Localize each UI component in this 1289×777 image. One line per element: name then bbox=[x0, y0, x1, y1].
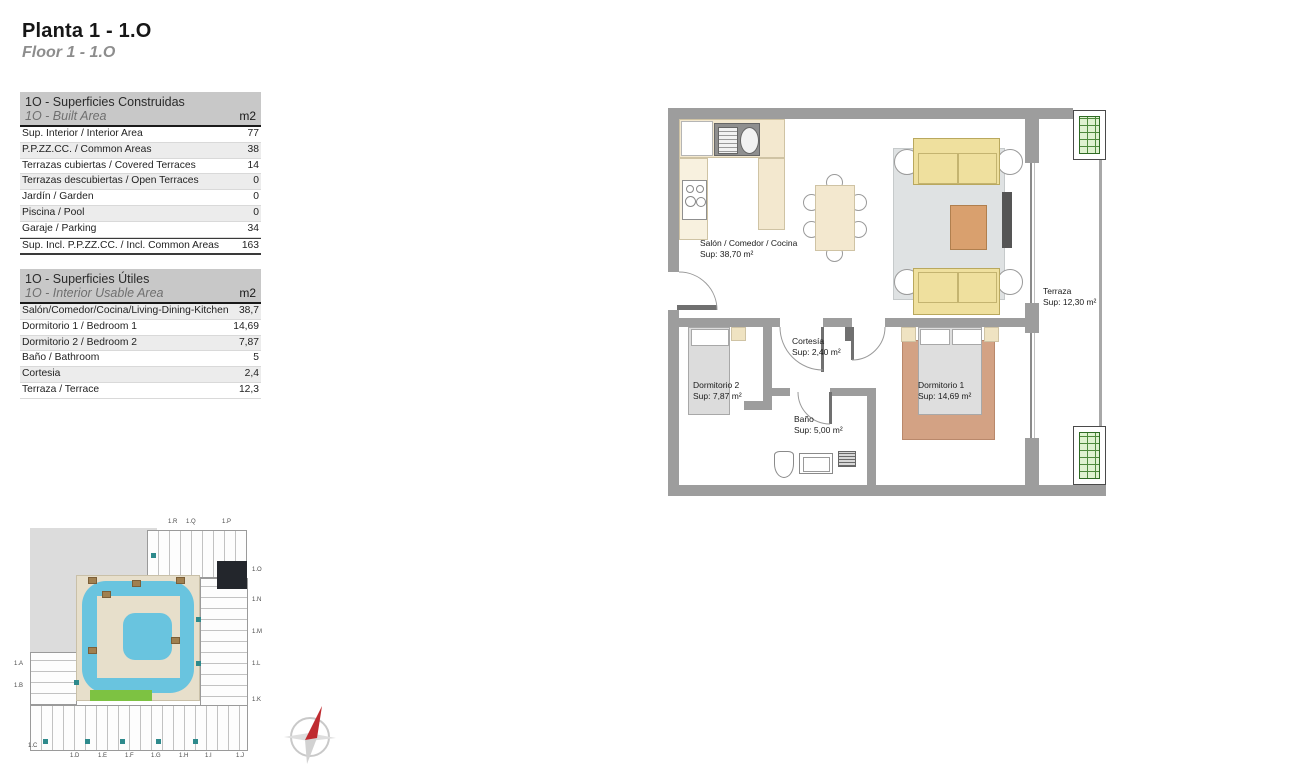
site-plan: 1.R1.Q1.P1.O1.N1.M1.L1.K1.A1.B1.C1.D1.E1… bbox=[28, 525, 250, 765]
table-row: Baño / Bathroom5 bbox=[20, 351, 261, 367]
site-units-right bbox=[200, 578, 248, 708]
row-value: 38 bbox=[248, 143, 259, 158]
site-units-bottom bbox=[30, 705, 248, 751]
room-labels-layer: Salón / Comedor / CocinaSup: 38,70 m²Ter… bbox=[668, 108, 1106, 496]
unit-label-1.C: 1.C bbox=[28, 743, 37, 749]
room-label-dormitorio1: Dormitorio 1Sup: 14,69 m² bbox=[918, 380, 971, 402]
row-value: 77 bbox=[248, 127, 259, 142]
unit-label-1.O: 1.O bbox=[252, 567, 262, 573]
table-unit: m2 bbox=[239, 286, 256, 300]
unit-label-1.M: 1.M bbox=[252, 629, 262, 635]
row-value: 2,4 bbox=[245, 367, 259, 382]
table-unit: m2 bbox=[239, 109, 256, 123]
table-row: Garaje / Parking34 bbox=[20, 222, 261, 238]
highlighted-unit-1o bbox=[217, 561, 247, 589]
unit-label-1.Q: 1.Q bbox=[186, 519, 196, 525]
unit-label-1.I: 1.I bbox=[205, 753, 212, 759]
teal-marker bbox=[85, 739, 90, 744]
row-value: 14,69 bbox=[233, 320, 259, 335]
row-label: Garaje / Parking bbox=[22, 222, 96, 237]
room-label-bano: BañoSup: 5,00 m² bbox=[794, 414, 843, 436]
room-label-terraza: TerrazaSup: 12,30 m² bbox=[1043, 286, 1096, 308]
row-label: Jardín / Garden bbox=[22, 190, 94, 205]
table-row: Terrazas cubiertas / Covered Terraces14 bbox=[20, 159, 261, 175]
table-row: Sup. Incl. P.P.ZZ.CC. / Incl. Common Are… bbox=[20, 238, 261, 256]
room-label-salon: Salón / Comedor / CocinaSup: 38,70 m² bbox=[700, 238, 797, 260]
deck-planter bbox=[88, 577, 97, 584]
row-value: 5 bbox=[253, 351, 259, 366]
row-label: Dormitorio 2 / Bedroom 2 bbox=[22, 336, 137, 351]
room-label-dormitorio2: Dormitorio 2Sup: 7,87 m² bbox=[693, 380, 742, 402]
unit-label-1.J: 1.J bbox=[236, 753, 244, 759]
built-area-table: 1O - Superficies Construidas 1O - Built … bbox=[20, 92, 261, 255]
teal-marker bbox=[151, 553, 156, 558]
table-title: 1O - Superficies Útiles bbox=[25, 272, 256, 286]
row-value: 0 bbox=[253, 174, 259, 189]
table-subtitle: 1O - Built Area bbox=[25, 109, 107, 123]
page-subtitle: Floor 1 - 1.O bbox=[22, 44, 115, 62]
table-subtitle: 1O - Interior Usable Area bbox=[25, 286, 163, 300]
table-row: P.P.ZZ.CC. / Common Areas38 bbox=[20, 143, 261, 159]
unit-label-1.B: 1.B bbox=[14, 683, 23, 689]
row-value: 163 bbox=[242, 239, 259, 254]
unit-label-1.A: 1.A bbox=[14, 661, 23, 667]
teal-marker bbox=[156, 739, 161, 744]
row-value: 12,3 bbox=[239, 383, 259, 398]
unit-label-1.G: 1.G bbox=[151, 753, 161, 759]
unit-label-1.N: 1.N bbox=[252, 597, 261, 603]
row-label: Terrazas cubiertas / Covered Terraces bbox=[22, 159, 196, 174]
row-label: P.P.ZZ.CC. / Common Areas bbox=[22, 143, 152, 158]
row-value: 38,7 bbox=[239, 304, 259, 319]
row-label: Sup. Interior / Interior Area bbox=[22, 127, 143, 142]
teal-marker bbox=[43, 739, 48, 744]
unit-label-1.P: 1.P bbox=[222, 519, 231, 525]
row-label: Salón/Comedor/Cocina/Living-Dining-Kitch… bbox=[22, 304, 229, 319]
teal-marker bbox=[196, 617, 201, 622]
room-label-cortesia: CortesíaSup: 2,40 m² bbox=[792, 336, 841, 358]
pool-inner bbox=[123, 613, 172, 660]
deck-planter bbox=[102, 591, 111, 598]
unit-label-1.H: 1.H bbox=[179, 753, 188, 759]
table-row: Dormitorio 1 / Bedroom 114,69 bbox=[20, 320, 261, 336]
unit-label-1.E: 1.E bbox=[98, 753, 107, 759]
table-row: Salón/Comedor/Cocina/Living-Dining-Kitch… bbox=[20, 304, 261, 320]
row-label: Cortesia bbox=[22, 367, 60, 382]
site-units-left bbox=[30, 652, 77, 705]
table-title: 1O - Superficies Construidas bbox=[25, 95, 256, 109]
lawn bbox=[90, 690, 152, 701]
row-label: Dormitorio 1 / Bedroom 1 bbox=[22, 320, 137, 335]
deck-planter bbox=[132, 580, 141, 587]
table-row: Sup. Interior / Interior Area77 bbox=[20, 127, 261, 143]
row-value: 34 bbox=[248, 222, 259, 237]
row-label: Terraza / Terrace bbox=[22, 383, 99, 398]
row-label: Sup. Incl. P.P.ZZ.CC. / Incl. Common Are… bbox=[22, 239, 219, 254]
teal-marker bbox=[120, 739, 125, 744]
compass-icon bbox=[283, 700, 339, 770]
row-value: 14 bbox=[248, 159, 259, 174]
table-row: Piscina / Pool0 bbox=[20, 206, 261, 222]
teal-marker bbox=[196, 661, 201, 666]
table-row: Terrazas descubiertas / Open Terraces0 bbox=[20, 174, 261, 190]
row-label: Terrazas descubiertas / Open Terraces bbox=[22, 174, 199, 189]
table-row: Jardín / Garden0 bbox=[20, 190, 261, 206]
floor-plan-sheet: Planta 1 - 1.O Floor 1 - 1.O 1O - Superf… bbox=[0, 0, 1289, 777]
page-title: Planta 1 - 1.O bbox=[22, 20, 152, 43]
unit-label-1.R: 1.R bbox=[168, 519, 177, 525]
table-row: Cortesia2,4 bbox=[20, 367, 261, 383]
row-label: Piscina / Pool bbox=[22, 206, 84, 221]
deck-planter bbox=[176, 577, 185, 584]
deck-planter bbox=[88, 647, 97, 654]
row-value: 0 bbox=[253, 190, 259, 205]
apartment-floorplan: Salón / Comedor / CocinaSup: 38,70 m²Ter… bbox=[668, 108, 1106, 496]
table-row: Dormitorio 2 / Bedroom 27,87 bbox=[20, 336, 261, 352]
table-header: 1O - Superficies Construidas 1O - Built … bbox=[20, 92, 261, 127]
unit-label-1.K: 1.K bbox=[252, 697, 261, 703]
row-label: Baño / Bathroom bbox=[22, 351, 99, 366]
deck-planter bbox=[171, 637, 180, 644]
table-row: Terraza / Terrace12,3 bbox=[20, 383, 261, 399]
row-value: 0 bbox=[253, 206, 259, 221]
teal-marker bbox=[74, 680, 79, 685]
unit-label-1.L: 1.L bbox=[252, 661, 260, 667]
teal-marker bbox=[193, 739, 198, 744]
table-rows: Sup. Interior / Interior Area77P.P.ZZ.CC… bbox=[20, 127, 261, 255]
row-value: 7,87 bbox=[239, 336, 259, 351]
unit-label-1.F: 1.F bbox=[125, 753, 134, 759]
table-rows: Salón/Comedor/Cocina/Living-Dining-Kitch… bbox=[20, 304, 261, 399]
usable-area-table: 1O - Superficies Útiles 1O - Interior Us… bbox=[20, 269, 261, 399]
unit-label-1.D: 1.D bbox=[70, 753, 79, 759]
table-header: 1O - Superficies Útiles 1O - Interior Us… bbox=[20, 269, 261, 304]
